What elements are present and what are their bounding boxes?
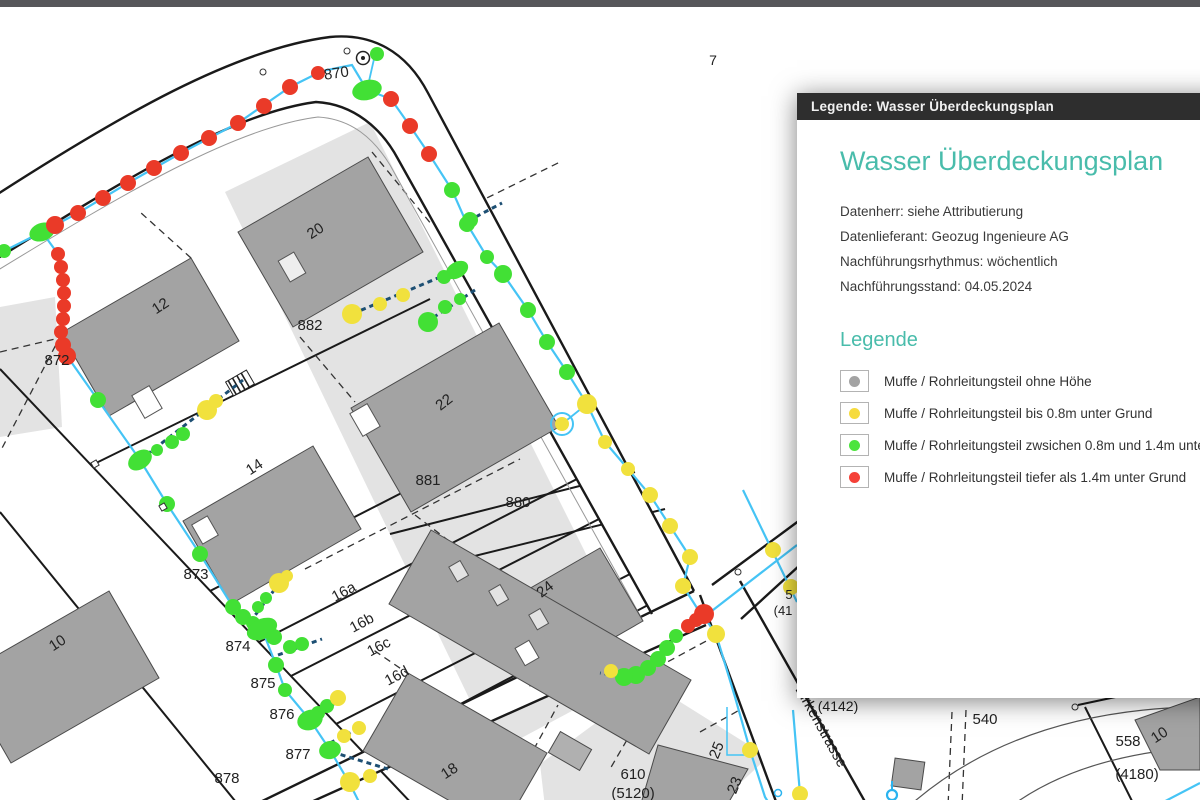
- building-10: [0, 591, 159, 763]
- map-label: 540: [972, 711, 997, 728]
- legend-swatch: [840, 370, 869, 392]
- legend-item[interactable]: Muffe / Rohrleitungsteil zwsichen 0.8m u…: [840, 434, 1200, 456]
- legend-heading: Legende: [840, 329, 1200, 352]
- map-label: 872: [44, 352, 69, 369]
- legend-panel-body: Wasser Überdeckungsplan Datenherr: siehe…: [797, 120, 1200, 488]
- map-label: (5120): [611, 785, 654, 800]
- pipe-depth-dot: [192, 546, 208, 562]
- pipe-depth-dot: [70, 205, 86, 221]
- pipe-depth-dot: [57, 286, 71, 300]
- legend-item[interactable]: Muffe / Rohrleitungsteil ohne Höhe: [840, 370, 1200, 392]
- pipe-depth-dot: [282, 79, 298, 95]
- pipe-depth-dot: [555, 417, 569, 431]
- pipe-depth-dot: [330, 690, 346, 706]
- pipe-depth-dot: [383, 91, 399, 107]
- pipe-depth-dot: [765, 542, 781, 558]
- pipe-depth-dot: [742, 742, 758, 758]
- pipe-node-symbol: [775, 790, 782, 797]
- pipe-depth-dot: [56, 273, 70, 287]
- map-label: 881: [415, 472, 440, 489]
- pipe-depth-dot: [598, 435, 612, 449]
- map-label: 610: [620, 766, 645, 783]
- map-label: 875: [250, 675, 275, 692]
- pipe-depth-dot: [340, 772, 360, 792]
- pipe-depth-dot: [621, 462, 635, 476]
- legend-item-label: Muffe / Rohrleitungsteil tiefer als 1.4m…: [884, 470, 1186, 485]
- pipe-depth-dot: [682, 549, 698, 565]
- pipe-depth-dot: [337, 729, 351, 743]
- pipe-depth-dot: [494, 265, 512, 283]
- pipe-depth-dot: [707, 625, 725, 643]
- map-label: (4180): [1115, 766, 1158, 783]
- pipe-depth-dot: [230, 115, 246, 131]
- pipe-depth-dot: [396, 288, 410, 302]
- map-label: 5: [785, 587, 792, 602]
- pipe-depth-dot: [694, 604, 714, 624]
- map-label: 877: [285, 746, 310, 763]
- legend-panel[interactable]: Legende: Wasser Überdeckungsplan Wasser …: [797, 93, 1200, 698]
- pipe-depth-dot: [266, 629, 282, 645]
- pipe-depth-dot: [278, 683, 292, 697]
- pipe-depth-dot: [642, 487, 658, 503]
- legend-dot-icon: [849, 408, 860, 419]
- map-label: 873: [183, 566, 208, 583]
- pipe-depth-dot: [260, 592, 272, 604]
- pipe-depth-dot: [209, 394, 223, 408]
- legend-swatch: [840, 466, 869, 488]
- pipe-depth-dot: [342, 304, 362, 324]
- meta-datenlieferant: Datenlieferant: Geozug Ingenieure AG: [840, 224, 1200, 249]
- pipe-depth-dot: [559, 364, 575, 380]
- map-label: 874: [225, 638, 250, 655]
- pipe-depth-dot: [444, 182, 460, 198]
- pipe-depth-dot: [268, 657, 284, 673]
- legend-dot-icon: [849, 440, 860, 451]
- pipe-depth-dot: [317, 738, 343, 761]
- legend-item-label: Muffe / Rohrleitungsteil zwsichen 0.8m u…: [884, 438, 1200, 453]
- water-pipe: [1152, 783, 1200, 800]
- map-label: 558: [1115, 733, 1140, 750]
- pipe-depth-dot: [56, 312, 70, 326]
- legend-swatch: [840, 434, 869, 456]
- pipe-depth-dot: [54, 325, 68, 339]
- pipe-depth-dot: [675, 578, 691, 594]
- map-label: 876: [269, 706, 294, 723]
- pipe-depth-dot: [173, 145, 189, 161]
- legend-dot-icon: [849, 472, 860, 483]
- map-label: 878: [214, 770, 239, 787]
- pipe-depth-dot: [201, 130, 217, 146]
- pipe-depth-dot: [539, 334, 555, 350]
- plan-title: Wasser Überdeckungsplan: [840, 146, 1200, 177]
- map-label: 882: [297, 317, 322, 334]
- pipe-depth-dot: [421, 146, 437, 162]
- pipe-depth-dot: [438, 300, 452, 314]
- map-label: (4142): [818, 698, 858, 714]
- pipe-depth-dot: [402, 118, 418, 134]
- pipe-depth-dot: [363, 769, 377, 783]
- map-viewer-screen: 8707872882122022148818808738748758768778…: [0, 0, 1200, 800]
- pipe-depth-dot: [95, 190, 111, 206]
- map-label: 880: [505, 494, 530, 511]
- pipe-depth-dot: [454, 293, 466, 305]
- pipe-depth-dot: [662, 518, 678, 534]
- pipe-depth-dot: [46, 216, 64, 234]
- pipe-depth-dot: [577, 394, 597, 414]
- pipe-depth-dot: [418, 312, 438, 332]
- pipe-depth-dot: [370, 47, 384, 61]
- legend-item[interactable]: Muffe / Rohrleitungsteil tiefer als 1.4m…: [840, 466, 1200, 488]
- pipe-depth-dot: [283, 640, 297, 654]
- meta-nachfuehrungsrhythmus: Nachführungsrhythmus: wöchentlich: [840, 249, 1200, 274]
- valve-target-symbol: [357, 52, 370, 65]
- building-small: [891, 758, 925, 790]
- pipe-depth-dot: [669, 629, 683, 643]
- pipe-depth-dot: [281, 570, 293, 582]
- legend-panel-titlebar[interactable]: Legende: Wasser Überdeckungsplan: [797, 93, 1200, 120]
- pipe-depth-dot: [520, 302, 536, 318]
- pipe-depth-dot: [252, 601, 264, 613]
- pipe-depth-dot: [295, 637, 309, 651]
- pipe-depth-dot: [57, 299, 71, 313]
- pipe-depth-dot: [604, 664, 618, 678]
- pipe-depth-dot: [90, 392, 106, 408]
- map-label: 7: [709, 52, 717, 68]
- legend-item[interactable]: Muffe / Rohrleitungsteil bis 0.8m unter …: [840, 402, 1200, 424]
- pipe-depth-dot: [51, 247, 65, 261]
- legend-item-label: Muffe / Rohrleitungsteil bis 0.8m unter …: [884, 406, 1152, 421]
- window-top-border: [0, 0, 1200, 7]
- meta-nachfuehrungsstand: Nachführungsstand: 04.05.2024: [840, 274, 1200, 299]
- pipe-depth-dot: [120, 175, 136, 191]
- map-label: (41: [774, 603, 793, 618]
- map-label: 16a: [329, 578, 360, 605]
- map-label: 16b: [347, 610, 377, 637]
- pipe-depth-dot: [146, 160, 162, 176]
- pipe-depth-dot: [256, 98, 272, 114]
- pipe-depth-dot: [54, 260, 68, 274]
- pipe-depth-dot: [151, 444, 163, 456]
- pipe-depth-dot: [462, 212, 478, 228]
- legend-item-label: Muffe / Rohrleitungsteil ohne Höhe: [884, 374, 1092, 389]
- map-label: 870: [323, 63, 350, 83]
- pipe-depth-dot: [373, 297, 387, 311]
- meta-datenherr: Datenherr: siehe Attributierung: [840, 199, 1200, 224]
- legend-items: Muffe / Rohrleitungsteil ohne HöheMuffe …: [840, 370, 1200, 488]
- pipe-depth-dot: [176, 427, 190, 441]
- pipe-depth-dot: [352, 721, 366, 735]
- map-label: 16c: [364, 634, 394, 661]
- legend-dot-icon: [849, 376, 860, 387]
- legend-swatch: [840, 402, 869, 424]
- pipe-depth-dot: [480, 250, 494, 264]
